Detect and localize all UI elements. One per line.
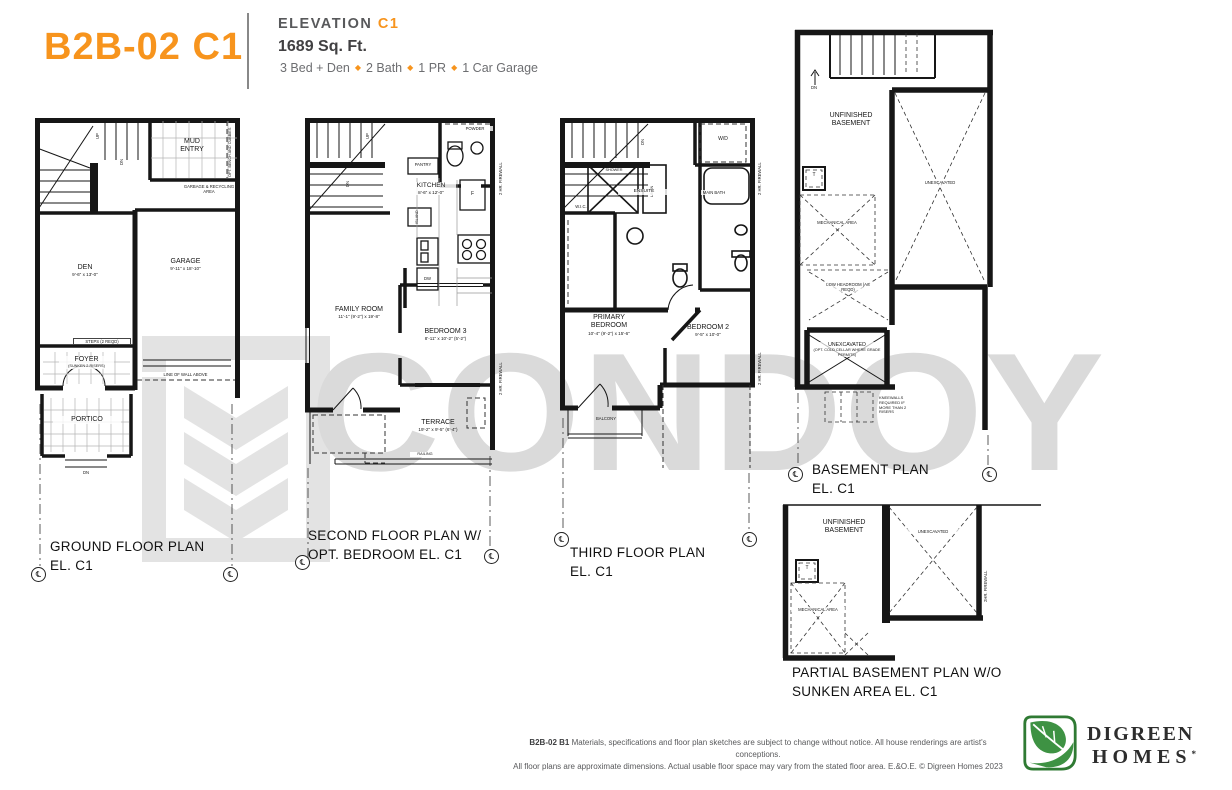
note-line-of-wall: LINE OF WALL ABOVE bbox=[138, 372, 233, 377]
railing-label: RAILING bbox=[410, 452, 440, 457]
plan-title-line1: GROUND FLOOR PLAN bbox=[50, 538, 204, 557]
room-name: FOYER bbox=[59, 356, 114, 364]
laundry-label: W/D bbox=[708, 136, 738, 142]
room-label-garage: GARAGE 9'-11" x 18'-10" bbox=[143, 258, 228, 272]
room-dims: 8'-11" x 10'-2" (5'-2") bbox=[403, 336, 488, 342]
plan-title-second: SECOND FLOOR PLAN W/ OPT. BEDROOM EL. C1 bbox=[308, 527, 481, 565]
firewall-label: 2 HR. FIREWALL bbox=[498, 143, 503, 215]
room-label-den: DEN 9'-6" x 13'-0" bbox=[50, 264, 120, 278]
header-divider bbox=[247, 13, 249, 89]
diamond-separator-icon: ◆ bbox=[355, 63, 361, 72]
note-steps: STEPS (2 REQD) bbox=[73, 338, 131, 345]
room-label-unexcavated: UNEXCAVATED bbox=[901, 529, 965, 534]
room-note: (OPT. COLD CELLAR WHERE GRADE PERMITS) bbox=[811, 348, 883, 357]
room-note: (SUNKEN 2 RISERS) bbox=[59, 364, 114, 369]
firewall-label: 2HR. FIREWALL bbox=[983, 555, 988, 617]
room-label-family-room: FAMILY ROOM 11'-1" (9'-2") x 19'-8" bbox=[323, 306, 395, 320]
centerline-marker: ℄ bbox=[554, 532, 569, 547]
steps-down-label: DN bbox=[77, 470, 95, 475]
room-label-cold-cellar: UNEXCAVATED (OPT. COLD CELLAR WHERE GRAD… bbox=[811, 342, 883, 357]
plan-title-line1: PARTIAL BASEMENT PLAN W/O bbox=[792, 664, 1002, 683]
third-floor-plan: DN W/D SHOWER LINEN ENSUITE W.I.C. MAIN … bbox=[560, 118, 755, 588]
centerline-marker: ℄ bbox=[484, 549, 499, 564]
dishwasher-label: DW bbox=[417, 276, 438, 281]
floor-plan-sheet: { "header": { "model": "B2B-02 C1", "ele… bbox=[0, 0, 1232, 790]
room-name: TERRACE bbox=[403, 419, 473, 427]
page-title: B2B-02 C1 bbox=[44, 26, 243, 69]
centerline-marker: ℄ bbox=[31, 567, 46, 582]
stairs-up-label: UP bbox=[95, 126, 100, 146]
plan-title-line2: EL. C1 bbox=[50, 557, 204, 576]
room-dims: 19'-2" x 9'-5" (6'-4") bbox=[403, 427, 473, 433]
room-label-main-bath: MAIN BATH bbox=[701, 190, 727, 195]
room-label-foyer: FOYER (SUNKEN 2 RISERS) bbox=[59, 356, 114, 369]
room-label-low-headroom: LOW HEADROOM (AS REQD) bbox=[821, 282, 875, 292]
room-dims: 9'-11" x 18'-10" bbox=[143, 266, 228, 272]
second-floor-plan-drawing bbox=[305, 118, 495, 573]
basement-plan: DN UNFINISHED BASEMENT T MECHANICAL AREA… bbox=[795, 30, 995, 510]
room-label-terrace: TERRACE 19'-2" x 9'-5" (6'-4") bbox=[403, 419, 473, 433]
room-label-unexcavated: UNEXCAVATED bbox=[905, 180, 975, 185]
room-name: PRIMARY BEDROOM bbox=[578, 314, 640, 331]
stairs-up-label: UP bbox=[365, 126, 370, 146]
specs-line: 3 Bed + Den◆2 Bath◆1 PR◆1 Car Garage bbox=[280, 61, 538, 75]
room-name: DEN bbox=[50, 264, 120, 272]
logo-trademark: * bbox=[1191, 749, 1201, 759]
plan-title-line1: SECOND FLOOR PLAN W/ bbox=[308, 527, 481, 546]
logo-line1: DIGREEN bbox=[1087, 723, 1201, 746]
note-kneewall: KNEEWALLS REQUIRED IF MORE THAN 2 RISERS bbox=[879, 396, 909, 415]
disclaimer-line1: B2B-02 B1 Materials, specifications and … bbox=[508, 737, 1008, 761]
room-name: GARAGE bbox=[143, 258, 228, 266]
centerline-marker: ℄ bbox=[223, 567, 238, 582]
disclaimer: B2B-02 B1 Materials, specifications and … bbox=[508, 737, 1008, 773]
room-label-primary-bedroom: PRIMARY BEDROOM 10'-4" (9'-2") x 15'-6" bbox=[578, 314, 640, 336]
ground-floor-plan: UP DN MUD ENTRY OPT. BENCH AND CUBBIES G… bbox=[35, 118, 240, 588]
basement-plan-drawing bbox=[795, 30, 995, 490]
disclaimer-model: B2B-02 B1 bbox=[529, 738, 569, 747]
stairs-down-label: DN bbox=[640, 132, 645, 152]
balcony-label: BALCONY bbox=[582, 416, 630, 421]
stairs-down-label: DN bbox=[345, 174, 350, 194]
digreen-homes-logo: DIGREEN HOMES* bbox=[1022, 714, 1201, 777]
area-label: 1689 Sq. Ft. bbox=[278, 38, 367, 56]
spec-baths: 2 Bath bbox=[366, 61, 402, 75]
note-opt-bench: OPT. BENCH AND CUBBIES bbox=[228, 126, 233, 178]
room-name: KITCHEN bbox=[406, 182, 456, 190]
room-label-mud-entry: MUD ENTRY bbox=[173, 138, 211, 155]
third-floor-plan-drawing bbox=[560, 118, 755, 558]
firewall-label: 2 HR. FIREWALL bbox=[498, 343, 503, 415]
room-label-unfinished-basement: UNFINISHED BASEMENT bbox=[815, 112, 887, 129]
diamond-separator-icon: ◆ bbox=[451, 63, 457, 72]
elevation-value: C1 bbox=[378, 16, 400, 32]
room-label-powder: POWDER bbox=[457, 126, 493, 131]
plan-title-line2: OPT. BEDROOM EL. C1 bbox=[308, 546, 481, 565]
centerline-marker: ℄ bbox=[295, 555, 310, 570]
centerline-marker: ℄ bbox=[982, 467, 997, 482]
fridge-label: F bbox=[460, 191, 485, 197]
plan-title-line1: THIRD FLOOR PLAN bbox=[570, 544, 705, 563]
plan-title-line2: EL. C1 bbox=[570, 563, 705, 582]
spec-beds: 3 Bed + Den bbox=[280, 61, 350, 75]
room-dims: 10'-4" (9'-2") x 15'-6" bbox=[578, 331, 640, 337]
room-dims: 9'-6" x 13'-0" bbox=[50, 272, 120, 278]
diamond-separator-icon: ◆ bbox=[407, 63, 413, 72]
room-name: BEDROOM 3 bbox=[403, 328, 488, 336]
room-dims: 8'-6" x 12'-0" bbox=[406, 190, 456, 196]
room-dims: 9'-5" x 10'-0" bbox=[673, 332, 743, 338]
room-label-pantry: PANTRY bbox=[408, 162, 438, 167]
plan-title-ground: GROUND FLOOR PLAN EL. C1 bbox=[50, 538, 204, 576]
second-floor-plan: UP DN POWDER PANTRY KITCHEN 8'-6" x 12'-… bbox=[305, 118, 495, 588]
room-label-bedroom3: BEDROOM 3 8'-11" x 10'-2" (5'-2") bbox=[403, 328, 488, 342]
firewall-label: 2 HR. FIREWALL bbox=[757, 333, 762, 405]
room-label-mechanical: MECHANICAL AREA bbox=[791, 607, 845, 612]
tank-label: T bbox=[796, 565, 818, 571]
elevation-label: ELEVATION C1 bbox=[278, 16, 399, 32]
room-label-mechanical: MECHANICAL AREA bbox=[807, 220, 867, 225]
island-label: ISLAND bbox=[415, 210, 420, 225]
room-label-bedroom2: BEDROOM 2 9'-5" x 10'-0" bbox=[673, 324, 743, 338]
centerline-marker: ℄ bbox=[742, 532, 757, 547]
plan-title-line2: SUNKEN AREA EL. C1 bbox=[792, 683, 1002, 702]
plan-title-partial: PARTIAL BASEMENT PLAN W/O SUNKEN AREA EL… bbox=[792, 664, 1002, 702]
leaf-icon bbox=[1022, 714, 1078, 777]
room-name: FAMILY ROOM bbox=[323, 306, 395, 314]
stairs-down-label: DN bbox=[119, 152, 124, 172]
spec-pr: 1 PR bbox=[418, 61, 446, 75]
partial-basement-plan: UNFINISHED BASEMENT T MECHANICAL AREA UN… bbox=[783, 503, 1043, 703]
elevation-text: ELEVATION bbox=[278, 16, 372, 32]
spec-garage: 1 Car Garage bbox=[462, 61, 538, 75]
room-label-portico: PORTICO bbox=[53, 416, 121, 424]
logo-line2: HOMES* bbox=[1087, 746, 1201, 769]
room-label-wic: W.I.C. bbox=[566, 204, 596, 209]
room-label-kitchen: KITCHEN 8'-6" x 12'-0" bbox=[406, 182, 456, 195]
room-label-ensuite: ENSUITE bbox=[618, 189, 670, 195]
plan-title-third: THIRD FLOOR PLAN EL. C1 bbox=[570, 544, 705, 582]
plan-title-basement: BASEMENT PLAN EL. C1 bbox=[812, 461, 929, 499]
firewall-label: 2 HR. FIREWALL bbox=[757, 143, 762, 215]
plan-title-line2: EL. C1 bbox=[812, 480, 929, 499]
plan-title-line1: BASEMENT PLAN bbox=[812, 461, 929, 480]
room-name: BEDROOM 2 bbox=[673, 324, 743, 332]
centerline-marker: ℄ bbox=[788, 467, 803, 482]
logo-wordmark: DIGREEN HOMES* bbox=[1087, 723, 1201, 769]
logo-homes-text: HOMES bbox=[1092, 746, 1191, 768]
room-dims: 11'-1" (9'-2") x 19'-8" bbox=[323, 314, 395, 320]
tank-label: T bbox=[803, 172, 825, 178]
shower-label: SHOWER bbox=[590, 168, 638, 173]
note-garbage-area: GARBAGE & RECYCLING AREA bbox=[183, 184, 235, 194]
room-label-unfinished-basement: UNFINISHED BASEMENT bbox=[808, 519, 880, 536]
disclaimer-line2: All floor plans are approximate dimensio… bbox=[508, 761, 1008, 773]
disclaimer-text1: Materials, specifications and floor plan… bbox=[572, 738, 987, 759]
stairs-down-label: DN bbox=[805, 85, 823, 90]
